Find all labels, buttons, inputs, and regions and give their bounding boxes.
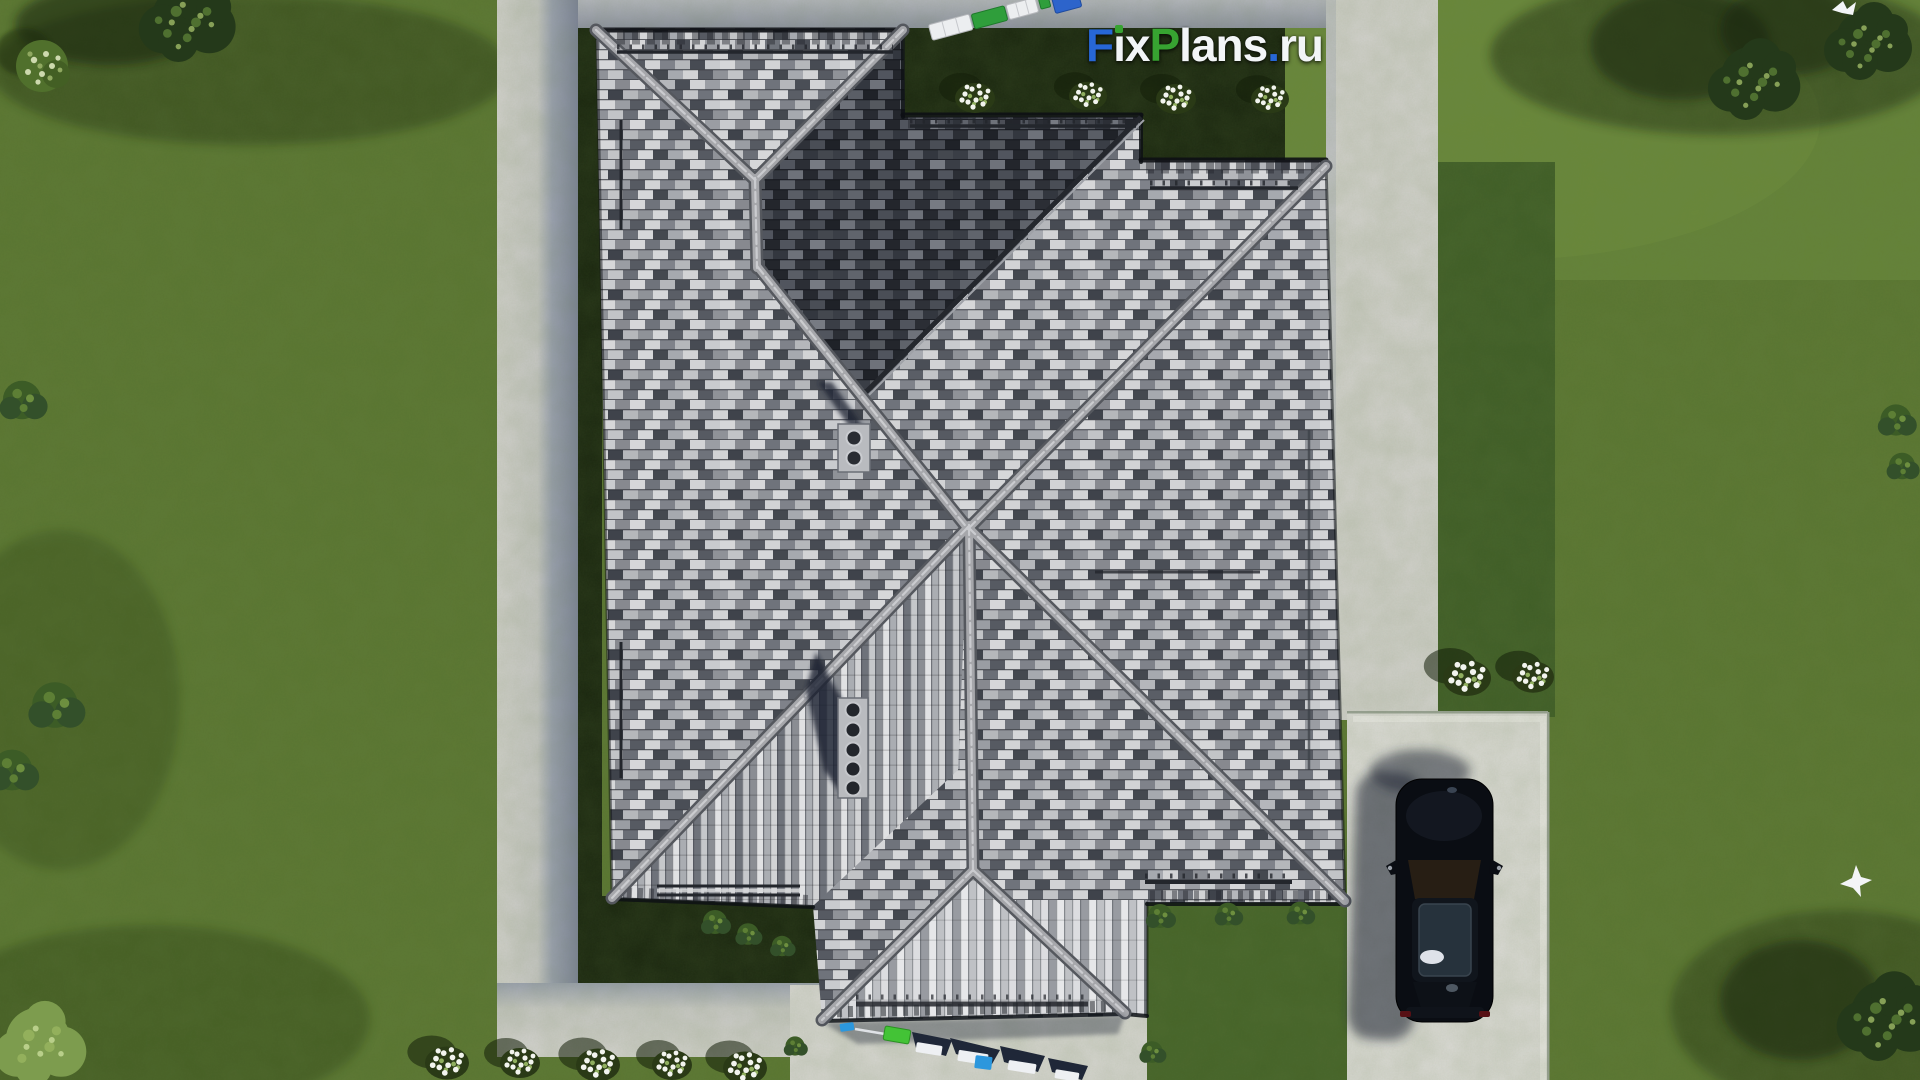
logo-seg-ru: ru xyxy=(1279,19,1323,71)
logo-seg-f: F xyxy=(1086,19,1113,71)
car-rear-window xyxy=(1413,982,1477,1008)
car-trunk xyxy=(1406,1007,1484,1018)
logo-seg-lans: lans xyxy=(1179,19,1267,71)
car-reflection xyxy=(1420,950,1444,964)
logo-seg-dot: . xyxy=(1267,19,1279,71)
logo-seg-x: x xyxy=(1125,19,1150,71)
logo-i-dot xyxy=(1115,25,1123,33)
logo-seg-p: P xyxy=(1149,19,1179,71)
logo-seg-i: ı xyxy=(1113,18,1125,72)
car-hood xyxy=(1406,791,1482,841)
watermark-logo: FıxPlans.ru xyxy=(1086,18,1323,72)
site-plan-render xyxy=(0,0,1920,1080)
house-roof xyxy=(596,28,1345,1021)
car-windshield xyxy=(1408,860,1481,899)
car xyxy=(1386,779,1503,1022)
car-sunroof xyxy=(1419,904,1471,976)
car-taillight-left xyxy=(1400,1011,1411,1017)
render-viewport: FıxPlans.ru xyxy=(0,0,1920,1080)
car-taillight-right xyxy=(1479,1011,1490,1017)
